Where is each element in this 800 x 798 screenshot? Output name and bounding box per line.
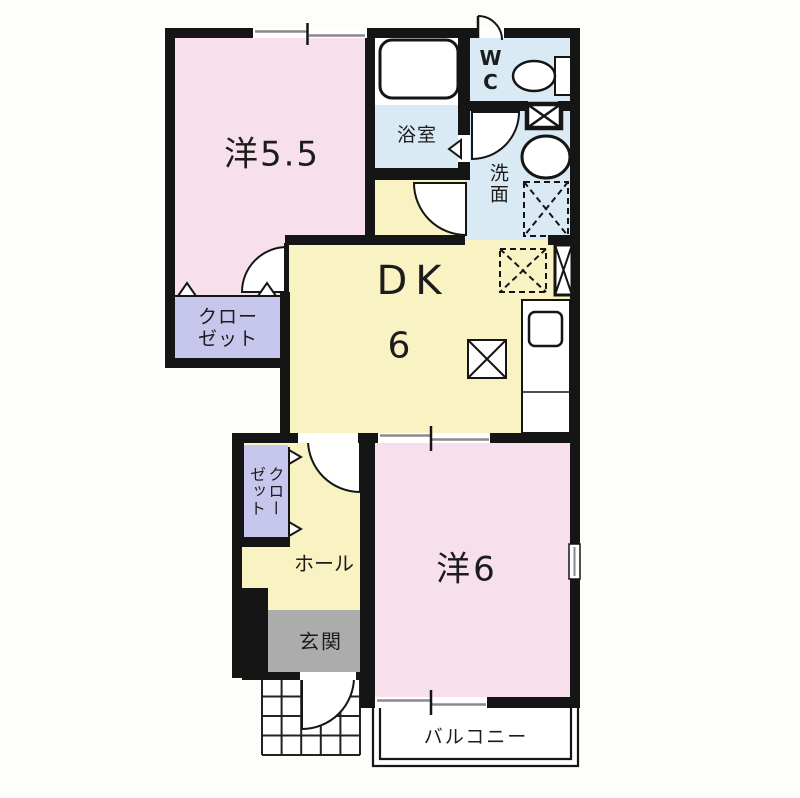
doorway-hall [298,433,358,443]
room-label-hall: ホール [294,553,354,576]
pipe-space-icon [555,245,572,295]
wall-entrance-left [242,588,268,678]
room-label-dk-size: 6 [388,325,411,366]
room-label-closet-upper: クローゼット [196,307,260,351]
wall-bath-left [365,28,375,245]
wall-dk-left [280,292,290,443]
wall-bath-bottom [365,168,462,180]
room-label-western6: 洋6 [436,550,498,589]
sliding-window-icon-western6-right [569,544,580,579]
kitchen-counter-sink-icon [522,300,570,433]
wall-right [570,28,580,708]
wall-closet-upper-bottom [165,358,290,368]
wall-closet-lower-left [234,435,244,547]
bathtub-icon [380,40,458,98]
washbasin-icon [522,136,570,178]
wall-wc-bottom [458,101,528,111]
doorway-entrance [300,672,356,680]
door-leaf-western55 [284,243,289,293]
room-label-washroom: 洗面 [486,163,508,205]
wall-bath-wc [458,28,470,135]
floor-plan-drawing [0,0,800,798]
equipment-box-icon [468,340,506,378]
wall-bath-washroom [458,162,470,180]
floor-plan: 洋5.5 浴室 WC 洗面 DK 6 クローゼット クローゼット ホール 玄関 … [0,0,800,798]
room-label-wc: WC [479,46,502,94]
room-label-dk: DK [368,258,449,304]
room-label-bath: 浴室 [397,125,437,147]
toilet-icon [513,57,571,95]
room-label-closet-lower: クローゼット [247,462,284,520]
room-label-entrance: 玄関 [299,631,343,654]
room-label-balcony: バルコニー [424,727,529,749]
wall-closet-lower-bottom [234,537,290,547]
wall-western6-left [360,433,375,708]
room-label-western55: 洋5.5 [224,135,320,174]
wall-left-upper [165,28,175,368]
meter-box-icon [527,104,561,128]
